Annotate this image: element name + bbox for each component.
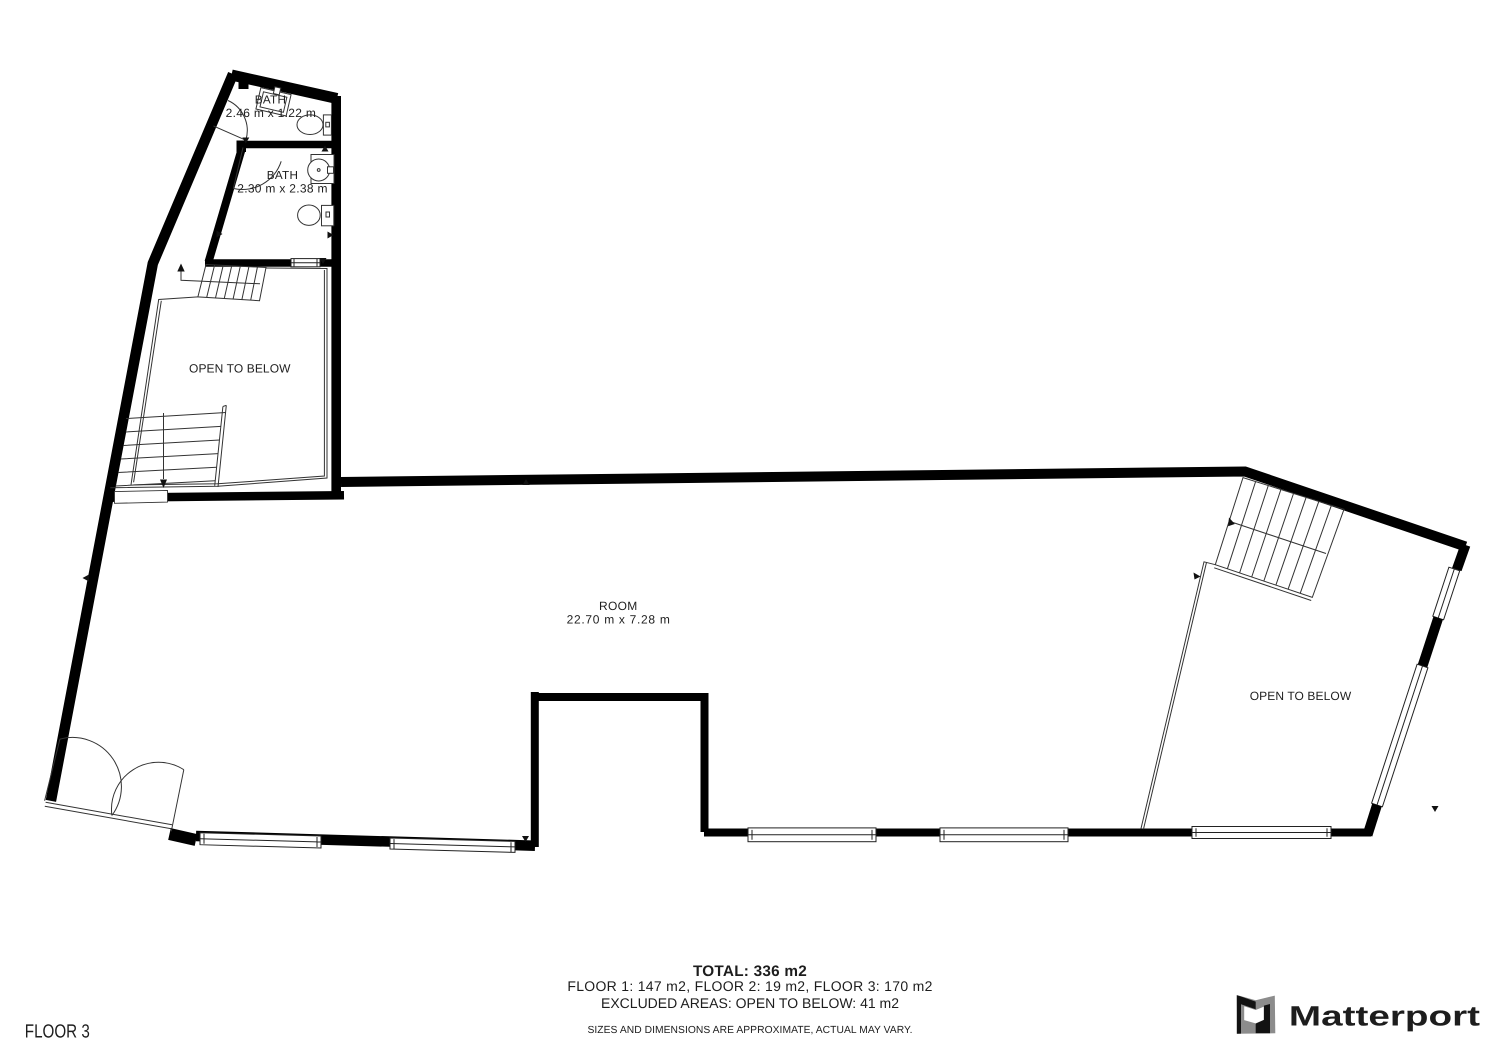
svg-text:OPEN TO BELOW: OPEN TO BELOW [1250,689,1352,703]
svg-text:BATH: BATH [267,169,299,182]
svg-text:BATH: BATH [255,94,287,107]
svg-text:2.46 m x 1.22 m: 2.46 m x 1.22 m [226,106,317,120]
svg-text:Matterport: Matterport [1289,1001,1480,1032]
svg-text:OPEN TO BELOW: OPEN TO BELOW [189,361,291,375]
svg-text:EXCLUDED AREAS: OPEN TO BELOW:: EXCLUDED AREAS: OPEN TO BELOW: 41 m2 [601,995,899,1011]
svg-text:ROOM: ROOM [599,599,638,613]
svg-text:22.70 m x 7.28 m: 22.70 m x 7.28 m [567,612,671,626]
svg-text:FLOOR 3: FLOOR 3 [25,1021,90,1042]
svg-text:FLOOR 1: 147 m2, FLOOR 2: 19 m: FLOOR 1: 147 m2, FLOOR 2: 19 m2, FLOOR 3… [567,978,932,994]
svg-text:SIZES AND DIMENSIONS ARE APPRO: SIZES AND DIMENSIONS ARE APPROXIMATE, AC… [587,1025,912,1036]
svg-text:2.30 m x 2.38 m: 2.30 m x 2.38 m [237,181,328,195]
